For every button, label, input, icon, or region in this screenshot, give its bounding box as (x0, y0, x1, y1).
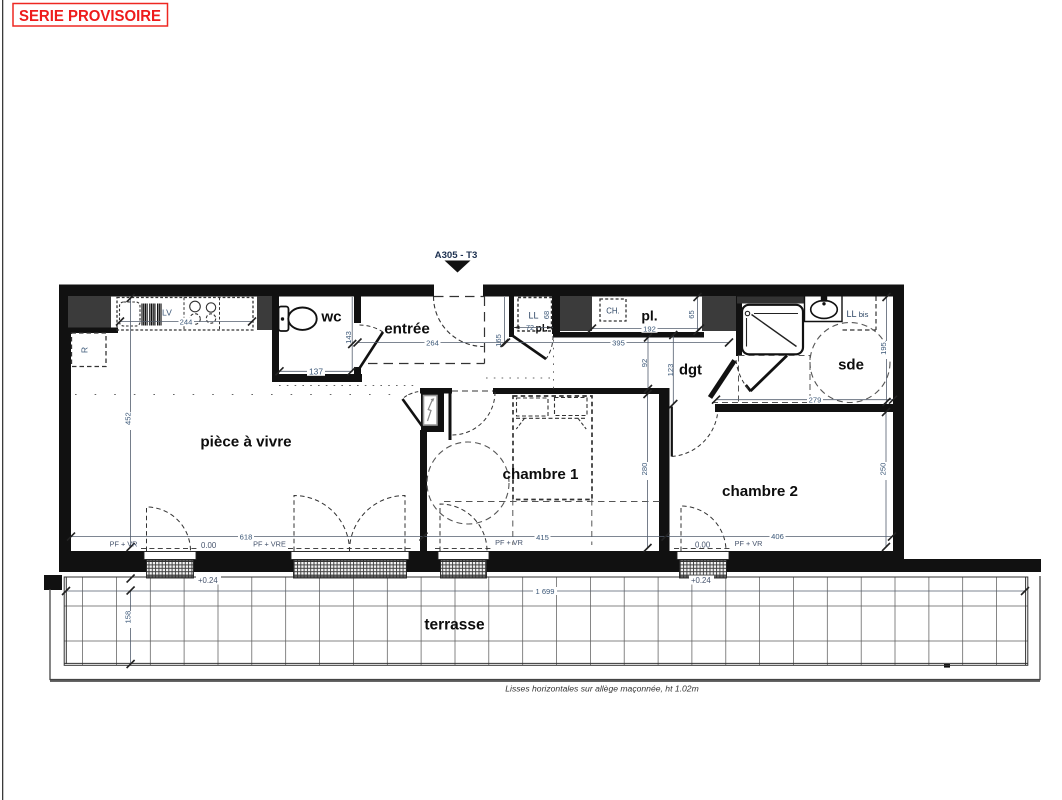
svg-text:68: 68 (542, 311, 551, 319)
svg-text:415: 415 (536, 533, 549, 542)
svg-text:0.00: 0.00 (695, 541, 711, 550)
svg-text:LV: LV (162, 308, 172, 318)
svg-text:PF + VRE: PF + VRE (253, 540, 286, 549)
svg-text:406: 406 (771, 532, 784, 541)
svg-text:195.: 195. (879, 340, 888, 355)
svg-text:SERIE PROVISOIRE: SERIE PROVISOIRE (19, 8, 161, 25)
svg-text:92: 92 (640, 359, 649, 367)
svg-text:0.00: 0.00 (201, 541, 217, 550)
svg-text:158: 158 (124, 611, 133, 624)
svg-text:R: R (80, 347, 90, 353)
svg-text:pièce à vivre: pièce à vivre (200, 434, 291, 451)
svg-text:entrée: entrée (384, 321, 430, 338)
svg-text:chambre 1: chambre 1 (503, 466, 580, 483)
svg-text:CH.: CH. (606, 307, 619, 316)
svg-text:sde: sde (838, 357, 864, 374)
svg-text:LL bis: LL bis (847, 309, 869, 319)
svg-text:452: 452 (124, 412, 133, 425)
svg-text:280: 280 (640, 463, 649, 476)
svg-text:PF + VR: PF + VR (735, 539, 763, 548)
svg-text:192: 192 (643, 325, 656, 334)
svg-text:618: 618 (240, 533, 253, 542)
svg-text:Lisses horizontales sur allège: Lisses horizontales sur allège maçonnée,… (505, 684, 698, 694)
svg-text:264: 264 (426, 339, 439, 348)
svg-text:terrasse: terrasse (424, 617, 485, 634)
svg-text:dgt: dgt (679, 363, 702, 379)
svg-text:65: 65 (687, 310, 696, 318)
svg-text:wc: wc (320, 309, 341, 326)
svg-text:244: 244 (180, 317, 193, 326)
svg-text:250: 250 (879, 463, 888, 476)
svg-text:+0.24: +0.24 (691, 576, 711, 585)
svg-text:pl.: pl. (536, 323, 548, 335)
svg-text:72: 72 (526, 323, 534, 332)
svg-text:pl.: pl. (641, 308, 657, 324)
svg-text:1 699: 1 699 (535, 587, 554, 596)
svg-text:137: 137 (309, 367, 323, 377)
svg-text:143: 143 (344, 331, 353, 344)
svg-text:chambre 2: chambre 2 (722, 483, 798, 500)
svg-text:PF + VR: PF + VR (110, 540, 138, 549)
svg-text:165: 165 (494, 334, 503, 347)
svg-text:395: 395 (612, 338, 625, 347)
svg-text:A305 - T3: A305 - T3 (435, 250, 478, 261)
svg-text:+0.24: +0.24 (198, 576, 218, 585)
svg-text:LL: LL (529, 311, 539, 321)
svg-text:PF + VR: PF + VR (495, 538, 523, 547)
svg-text:123: 123 (666, 364, 675, 377)
svg-text:279: 279 (809, 396, 822, 405)
